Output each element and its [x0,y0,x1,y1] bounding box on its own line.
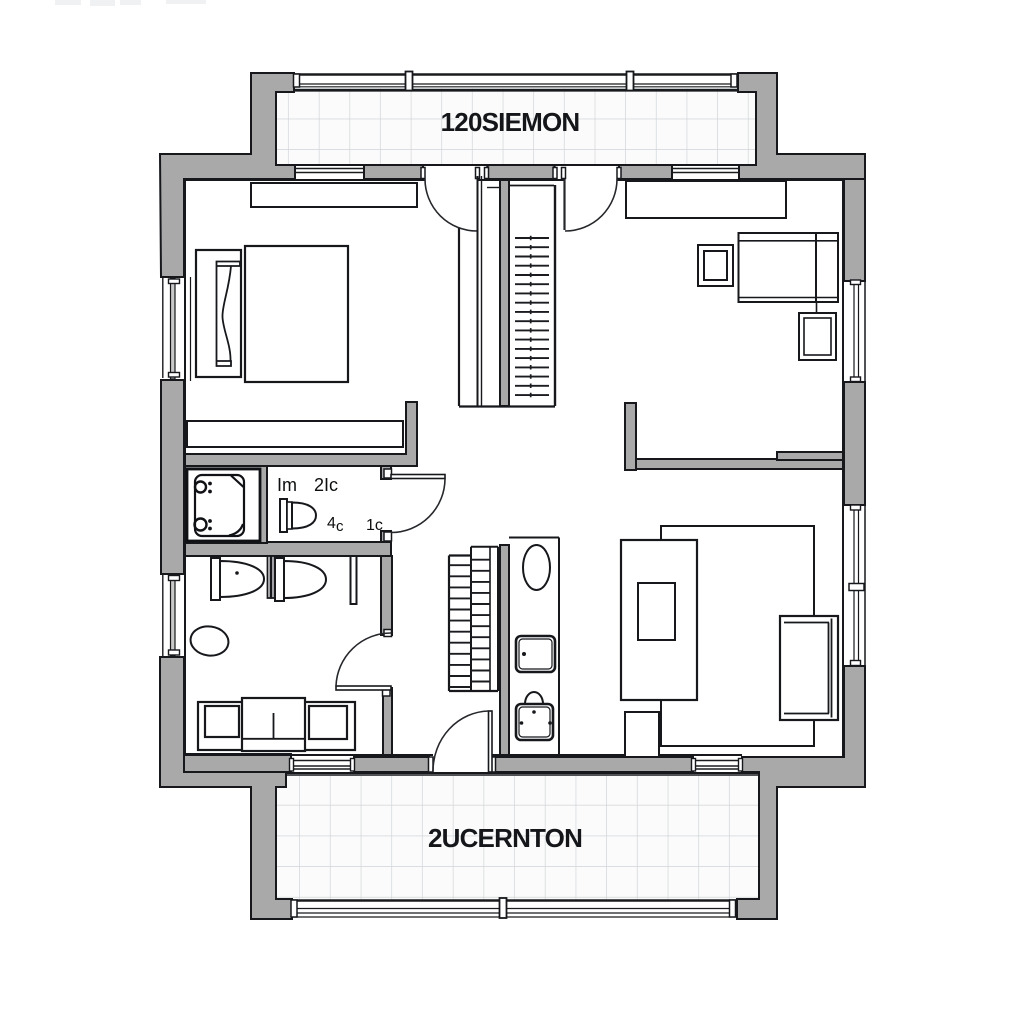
svg-text:1c: 1c [366,517,383,534]
svg-text:2Ic: 2Ic [314,475,338,495]
svg-text:120SIEMON: 120SIEMON [441,107,580,137]
svg-text:2UCERNTON: 2UCERNTON [428,823,582,853]
svg-text:4: 4 [327,515,336,532]
svg-text:Im: Im [277,475,297,495]
svg-text:c: c [336,518,344,535]
